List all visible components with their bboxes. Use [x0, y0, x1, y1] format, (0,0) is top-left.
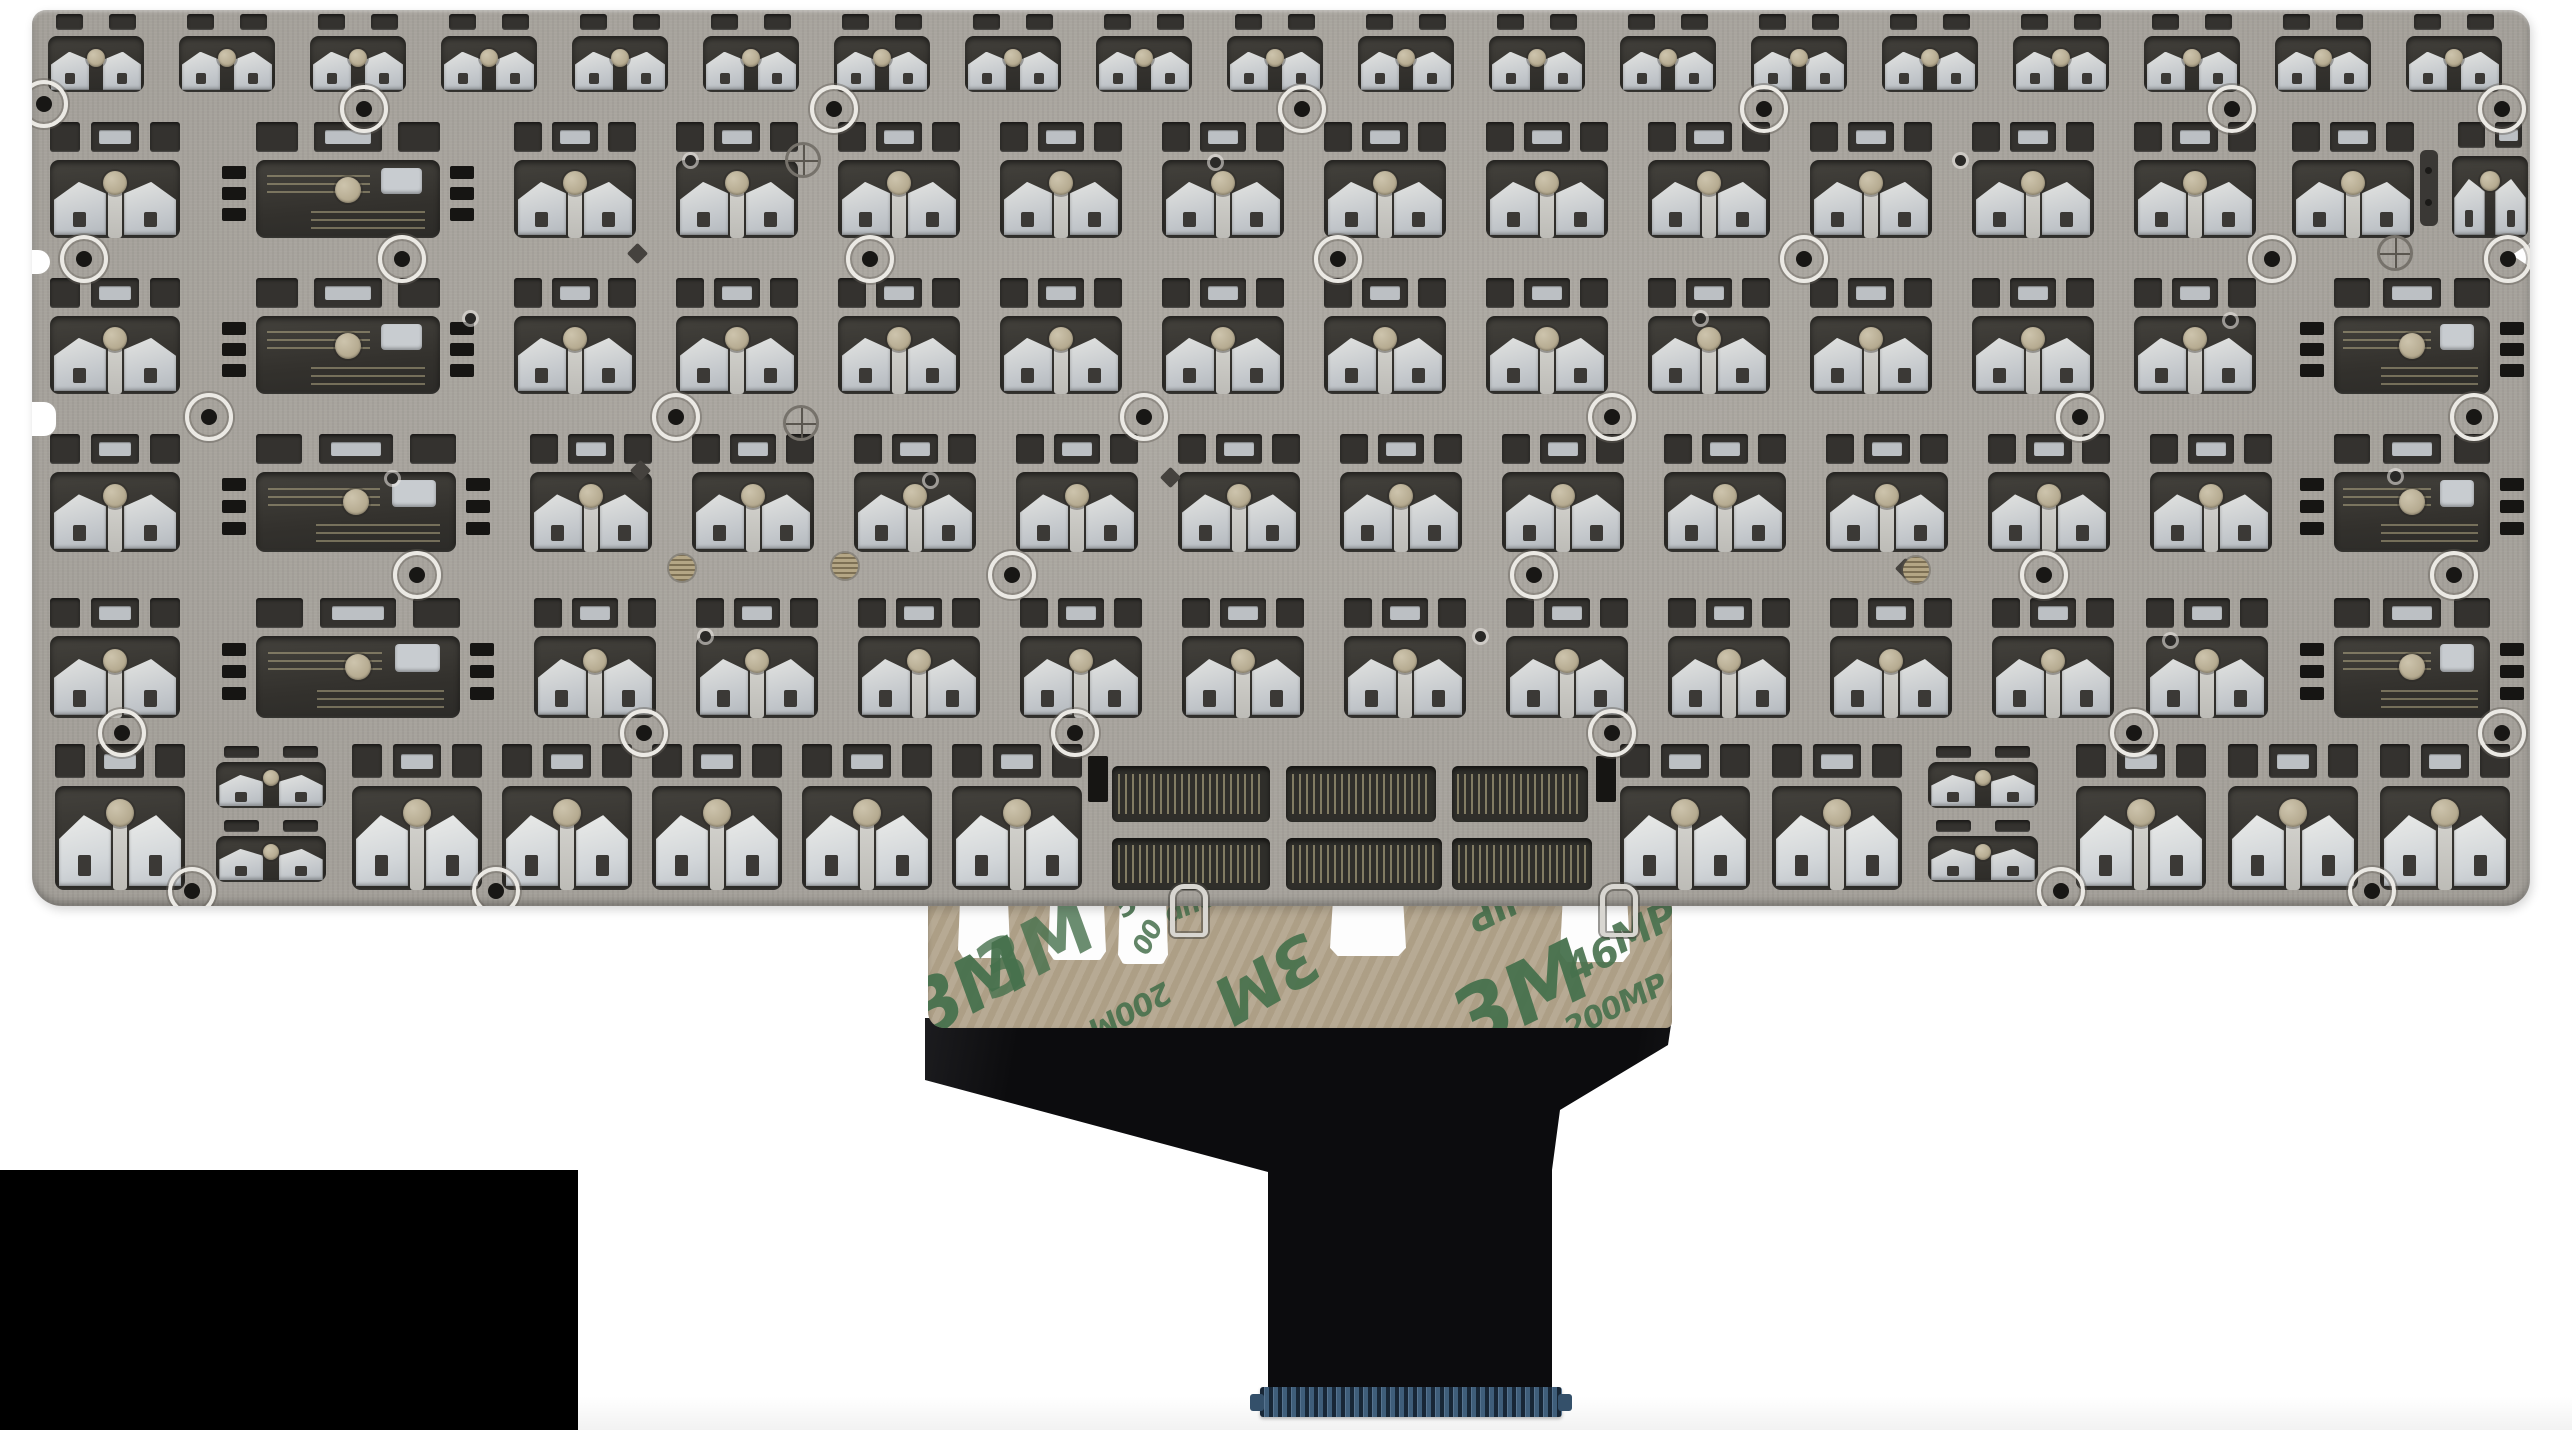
rivet-hole — [2446, 567, 2462, 583]
hook-slot — [91, 434, 139, 464]
wing-notch — [764, 212, 777, 228]
pivot-pad — [563, 171, 587, 195]
pivot-stem — [1054, 188, 1067, 238]
hook-slot — [1104, 14, 1131, 30]
key-cutout — [1928, 762, 2038, 808]
hook-slot — [790, 598, 818, 628]
scissor-wing-right — [758, 52, 796, 90]
key-cutout — [1182, 636, 1304, 718]
pivot-stem — [746, 501, 759, 552]
hook-slot — [1340, 434, 1368, 464]
mechanism-piece — [395, 644, 440, 672]
scissor-wing-right — [908, 182, 957, 235]
key-mechanism-small — [1620, 14, 1716, 92]
key-mechanism-small — [310, 14, 406, 92]
rivet-hole — [2224, 101, 2240, 117]
side-tab — [466, 478, 490, 491]
pivot-pad — [263, 844, 279, 860]
key-mechanism-small — [1227, 14, 1323, 92]
key-mechanism-std — [1972, 278, 2094, 394]
tape-marking-print: 3M — [1206, 915, 1330, 1028]
key-cutout — [2292, 160, 2414, 238]
pivot-pad — [87, 49, 105, 67]
wing-notch — [1266, 525, 1279, 541]
pivot-pad — [103, 327, 127, 351]
slot-insert — [99, 286, 132, 300]
wing-notch — [446, 855, 460, 876]
pivot-stem — [908, 501, 921, 552]
scissor-wing-right — [2062, 659, 2111, 715]
scissor-wing-left — [858, 494, 907, 548]
hook-slot — [1864, 434, 1909, 464]
hook-slot — [109, 14, 136, 30]
side-tab — [2300, 665, 2324, 678]
scissor-wing-right — [124, 182, 176, 235]
hook-slot — [2458, 122, 2485, 148]
scissor-wing-left — [1754, 52, 1792, 90]
wing-notch — [1041, 690, 1054, 707]
hook-slot — [2188, 434, 2233, 464]
slot-insert — [1386, 442, 1417, 456]
scissor-wing-left — [1776, 815, 1828, 886]
slot-insert — [1228, 606, 1259, 620]
pivot-stem — [1394, 501, 1407, 552]
pivot-stem — [1010, 823, 1024, 890]
hook-slot — [1524, 122, 1569, 152]
key-cutout — [1972, 160, 2094, 238]
key-mechanism-small — [834, 14, 930, 92]
rivet-hole — [201, 409, 217, 425]
key-cutout — [2076, 786, 2206, 890]
key-mechanism-std — [1344, 598, 1466, 718]
scissor-wing-left — [1672, 659, 1721, 715]
pivot-stem — [1540, 188, 1553, 238]
pivot-pad — [887, 171, 911, 195]
wing-notch — [1768, 73, 1778, 84]
scissor-wing-right — [1734, 494, 1783, 548]
pivot-pad — [1921, 49, 1939, 67]
wing-notch — [1594, 690, 1607, 707]
side-tab — [2500, 687, 2524, 700]
hook-slot — [1686, 278, 1731, 308]
key-mechanism-std — [1502, 434, 1624, 552]
rivet-ring — [1314, 235, 1362, 283]
wing-notch — [1507, 212, 1520, 228]
scissor-wing-right — [124, 338, 176, 391]
scissor-wing-left — [313, 52, 351, 90]
wing-notch — [720, 73, 730, 84]
wing-notch — [144, 368, 158, 384]
scissor-wing-left — [2232, 815, 2284, 886]
scissor-wing-right — [1090, 659, 1139, 715]
scissor-wing-right — [1556, 182, 1605, 235]
hook-slot — [858, 598, 886, 628]
hook-slot — [1272, 434, 1300, 464]
pivot-stem — [410, 823, 424, 890]
wing-notch — [2222, 212, 2235, 228]
key-mechanism-small — [48, 14, 144, 92]
pivot-pad — [1875, 484, 1899, 508]
pivot-stem — [730, 188, 743, 238]
key-mechanism-std — [692, 434, 814, 552]
hook-slot — [1182, 598, 1210, 628]
hook-slot — [2066, 122, 2094, 152]
slot-insert — [1370, 130, 1401, 144]
hook-slot — [1648, 278, 1676, 308]
key-cutout — [2334, 472, 2490, 552]
hook-slot — [1580, 278, 1608, 308]
key-cutout — [256, 316, 440, 394]
wing-notch — [65, 73, 75, 84]
key-mechanism-wide — [2300, 278, 2524, 394]
scissor-wing-left — [2150, 659, 2199, 715]
scissor-wing-left — [2154, 494, 2203, 548]
scissor-wing-left — [1230, 52, 1268, 90]
rivet-ring — [168, 867, 216, 906]
rivet-ring — [2208, 85, 2256, 133]
scissor-wing-left — [1652, 338, 1701, 391]
hook-slot — [413, 598, 460, 628]
pivot-pad — [887, 327, 911, 351]
scissor-wing-right — [1070, 338, 1119, 391]
wing-notch — [780, 525, 793, 541]
side-tab — [2300, 343, 2324, 356]
flex-trace-window — [2381, 361, 2478, 384]
scissor-wing-left — [968, 52, 1006, 90]
wing-notch — [1993, 212, 2006, 228]
slot-insert — [1872, 442, 1903, 456]
rivet-ring — [1510, 551, 1558, 599]
side-tab — [222, 687, 246, 700]
key-cutout — [965, 36, 1061, 92]
scissor-wing-left — [2080, 815, 2132, 886]
wing-notch — [535, 212, 548, 228]
scissor-wing-right — [2058, 494, 2107, 548]
hook-slot — [1418, 278, 1446, 308]
wing-notch — [73, 690, 87, 707]
pivot-stem — [1070, 501, 1083, 552]
wing-notch — [2380, 212, 2393, 228]
key-mechanism-wide — [2300, 434, 2524, 552]
connector-side-nub — [1250, 1394, 1264, 1411]
pivot-pad — [343, 489, 369, 515]
pivot-pad — [1823, 799, 1851, 827]
key-cutout — [1016, 472, 1138, 552]
rivet-ring — [2110, 709, 2158, 757]
key-mechanism-std — [1648, 278, 1770, 394]
key-mechanism-wide — [222, 434, 490, 552]
wing-notch — [78, 855, 92, 876]
side-tab — [466, 500, 490, 513]
pivot-pad — [1975, 844, 1991, 860]
pivot-stem — [1232, 501, 1245, 552]
pivot-stem — [1880, 501, 1893, 552]
wing-notch — [2013, 690, 2026, 707]
slot-insert — [560, 130, 591, 144]
pivot-stem — [2188, 188, 2201, 238]
screw-hole — [1695, 313, 1706, 324]
hook-slot — [1995, 746, 2030, 758]
scissor-wing-right — [1718, 182, 1767, 235]
crosshair-fiducial — [2377, 235, 2413, 271]
key-cutout — [2275, 36, 2371, 92]
side-tab — [450, 364, 474, 377]
pivot-stem — [1540, 344, 1553, 394]
scissor-wing-right — [928, 659, 977, 715]
key-mechanism-stack — [1924, 744, 2042, 890]
wing-notch — [622, 690, 635, 707]
key-cutout — [2013, 36, 2109, 92]
key-cutout — [838, 316, 960, 394]
key-mechanism-std — [1020, 598, 1142, 718]
rivet-hole — [1067, 725, 1083, 741]
wing-notch — [764, 368, 777, 384]
key-mechanism-wide — [2300, 598, 2524, 718]
hook-slot — [1256, 122, 1284, 152]
side-tab — [450, 187, 474, 200]
key-cutout — [50, 316, 180, 394]
slot-insert — [1208, 130, 1239, 144]
scissor-wing-left — [680, 338, 729, 391]
hook-slot — [1720, 744, 1750, 778]
rivet-ring — [185, 393, 233, 441]
key-mechanism-small — [179, 14, 275, 92]
wing-notch — [896, 855, 910, 876]
key-mechanism-std — [1810, 278, 1932, 394]
scissor-wing-right — [584, 182, 633, 235]
hook-slot — [502, 14, 529, 30]
plate-edge-notch — [32, 250, 50, 274]
slot-insert — [722, 130, 753, 144]
wing-notch — [2030, 73, 2040, 84]
slot-insert — [1062, 442, 1093, 456]
hook-slot — [1200, 278, 1245, 308]
pivot-pad — [579, 484, 603, 508]
rivet-ring — [340, 85, 388, 133]
side-tab — [222, 522, 246, 535]
wing-notch — [73, 212, 87, 228]
pivot-pad — [2279, 799, 2307, 827]
key-cutout — [1664, 472, 1786, 552]
pivot-pad — [2052, 49, 2070, 67]
hook-slot — [932, 278, 960, 308]
slot-insert — [2180, 286, 2211, 300]
key-cutout — [1928, 836, 2038, 882]
hook-slot — [352, 744, 382, 778]
wire-loop — [1600, 884, 1638, 937]
wing-notch — [1947, 866, 1958, 875]
slot-insert — [1821, 754, 1854, 770]
scissor-wing-right — [1232, 338, 1281, 391]
scissor-wing-right — [1900, 659, 1949, 715]
scissor-wing-right — [1806, 52, 1844, 90]
key-cutout — [1648, 316, 1770, 394]
slot-insert — [904, 606, 935, 620]
side-tab — [222, 665, 246, 678]
scissor-wing-left — [1931, 775, 1975, 806]
scissor-wing-left — [700, 659, 749, 715]
scissor-wing-right — [1394, 182, 1443, 235]
hook-slot — [1810, 278, 1838, 308]
pivot-stem — [1236, 666, 1249, 718]
key-cutout — [2146, 636, 2268, 718]
hook-slot — [1054, 434, 1099, 464]
slot-insert — [2180, 130, 2211, 144]
scissor-wing-left — [2296, 182, 2345, 235]
crosshair-v — [2395, 238, 2397, 268]
key-mechanism-small — [1489, 14, 1585, 92]
hook-slot — [1524, 278, 1569, 308]
hook-slot — [752, 744, 782, 778]
scissor-wing-right — [496, 52, 534, 90]
wing-notch — [1951, 73, 1961, 84]
hook-slot — [1992, 598, 2020, 628]
flex-trace-window — [311, 205, 425, 228]
wing-notch — [1831, 368, 1844, 384]
scissor-wing-right — [627, 52, 665, 90]
slot-insert — [884, 130, 915, 144]
pivot-pad — [1227, 484, 1251, 508]
pivot-stem — [1830, 823, 1844, 890]
scissor-wing-left — [538, 659, 587, 715]
key-mechanism-wide — [222, 122, 474, 238]
key-mechanism-std — [676, 122, 798, 238]
key-cutout — [2406, 36, 2502, 92]
key-cutout — [502, 786, 632, 890]
scissor-wing-left — [1834, 659, 1883, 715]
hook-slot — [1904, 122, 1932, 152]
wing-notch — [295, 792, 306, 801]
rivet-hole — [1526, 567, 1542, 583]
wing-notch — [1643, 855, 1657, 876]
slot-insert — [560, 286, 591, 300]
pivot-pad — [903, 484, 927, 508]
key-cutout — [1772, 786, 1902, 890]
bracket-hole — [2425, 167, 2432, 174]
hook-slot — [2328, 744, 2358, 778]
pivot-pad — [2037, 484, 2061, 508]
wing-notch — [2423, 73, 2433, 84]
wing-notch — [2222, 368, 2235, 384]
hook-slot — [319, 434, 393, 464]
brass-boss — [669, 555, 695, 581]
mechanism-piece — [2440, 480, 2474, 507]
hook-slot — [843, 744, 891, 778]
hook-slot — [91, 278, 139, 308]
hook-slot — [2334, 278, 2370, 308]
hook-slot — [534, 598, 562, 628]
key-cutout — [2380, 786, 2510, 890]
wing-notch — [510, 73, 520, 84]
tape-cutout-slot — [1330, 898, 1406, 956]
hook-slot — [2383, 598, 2441, 628]
scissor-wing-right — [876, 815, 928, 886]
wing-notch — [1183, 212, 1196, 228]
hook-slot — [1256, 278, 1284, 308]
wing-notch — [144, 212, 158, 228]
scissor-wing-left — [54, 659, 106, 715]
key-cutout — [1502, 472, 1624, 552]
rivet-hole — [1294, 101, 1310, 117]
pivot-pad — [1135, 49, 1153, 67]
hook-slot — [2134, 122, 2162, 152]
side-tab — [2500, 522, 2524, 535]
scissor-wing-right — [584, 338, 633, 391]
scissor-wing-left — [54, 338, 106, 391]
key-mechanism-std — [50, 122, 180, 238]
scissor-wing-right — [2362, 182, 2411, 235]
metal-backplate — [32, 10, 2530, 906]
scissor-wing-right — [2068, 52, 2106, 90]
plate-edge-notch — [32, 402, 56, 436]
pivot-pad — [1535, 171, 1559, 195]
pivot-stem — [2438, 823, 2452, 890]
rivet-hole — [2264, 251, 2280, 267]
rivet-hole — [488, 883, 504, 899]
wing-notch — [2465, 210, 2473, 227]
slot-insert — [1066, 606, 1097, 620]
hook-slot — [1812, 14, 1839, 30]
scissor-wing-right — [1846, 815, 1898, 886]
wing-notch — [1637, 73, 1647, 84]
key-cutout — [256, 636, 460, 718]
hook-slot — [2150, 434, 2178, 464]
hook-slot — [952, 598, 980, 628]
scissor-wing-left — [2016, 52, 2054, 90]
scissor-wing-right — [1544, 52, 1582, 90]
wing-notch — [1345, 212, 1358, 228]
slot-insert — [1532, 130, 1563, 144]
scissor-wing-left — [842, 338, 891, 391]
key-cutout — [2228, 786, 2358, 890]
rivet-hole — [1604, 409, 1620, 425]
hook-slot — [552, 122, 597, 152]
key-cutout — [1227, 36, 1323, 92]
scissor-wing-right — [2150, 815, 2202, 886]
wing-notch — [1165, 73, 1175, 84]
rivet-ring — [393, 551, 441, 599]
side-tab — [2500, 364, 2524, 377]
screw-hole — [1475, 631, 1486, 642]
key-cutout — [55, 786, 185, 890]
scissor-wing-left — [575, 52, 613, 90]
hook-slot — [2021, 14, 2048, 30]
rivet-ring — [2478, 709, 2526, 757]
scissor-wing-left — [842, 182, 891, 235]
hook-slot — [1920, 434, 1948, 464]
scissor-wing-right — [1991, 775, 2035, 806]
pivot-stem — [860, 823, 874, 890]
wing-notch — [2076, 525, 2089, 541]
brass-boss — [1903, 557, 1929, 583]
hook-slot — [1362, 278, 1407, 308]
hook-slot — [514, 122, 542, 152]
pivot-stem — [1398, 666, 1411, 718]
hook-slot — [633, 14, 660, 30]
wing-notch — [149, 855, 163, 876]
wing-notch — [1375, 73, 1385, 84]
wing-notch — [235, 866, 246, 875]
key-cutout — [441, 36, 537, 92]
flex-traces — [1118, 845, 1263, 882]
side-tab — [2500, 500, 2524, 513]
key-cutout — [530, 472, 652, 552]
hook-slot — [2269, 744, 2317, 778]
key-mechanism-std — [1340, 434, 1462, 552]
wing-notch — [602, 368, 615, 384]
wing-notch — [525, 855, 539, 876]
key-cutout — [1992, 636, 2114, 718]
